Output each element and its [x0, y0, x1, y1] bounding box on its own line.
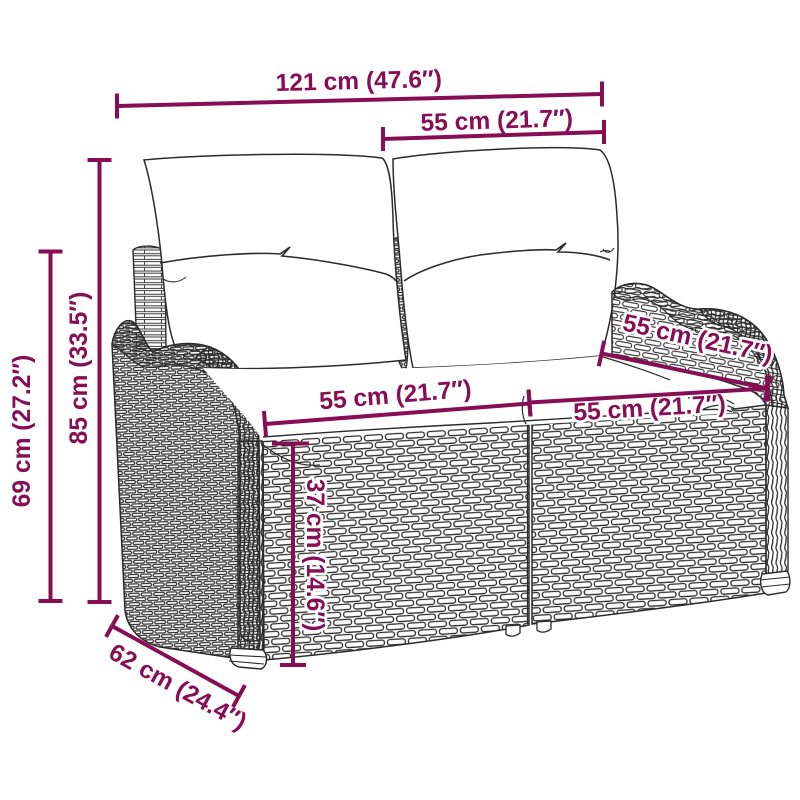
svg-text:37 cm (14.6″): 37 cm (14.6″) — [301, 479, 328, 632]
svg-text:69 cm (27.2″): 69 cm (27.2″) — [9, 355, 36, 508]
svg-text:85 cm (33.5″): 85 cm (33.5″) — [66, 292, 93, 445]
svg-text:121 cm (47.6″): 121 cm (47.6″) — [275, 66, 442, 97]
